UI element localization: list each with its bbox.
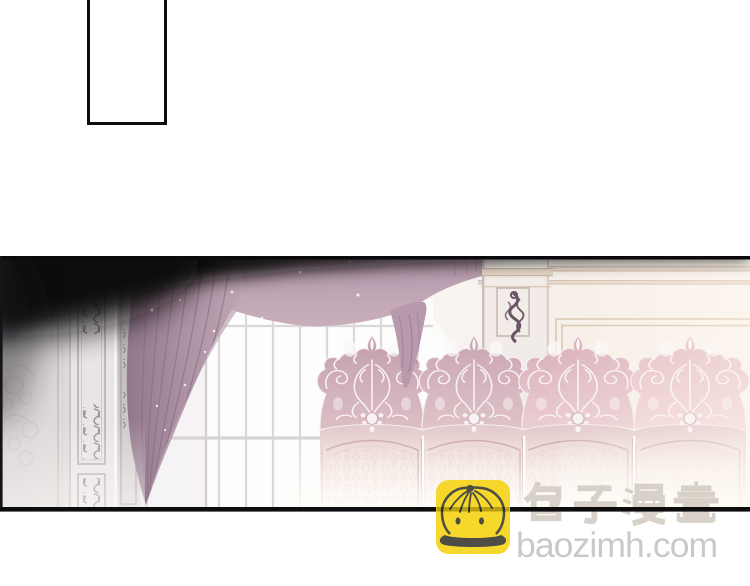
svg-text:baozimh.com: baozimh.com xyxy=(516,525,717,565)
